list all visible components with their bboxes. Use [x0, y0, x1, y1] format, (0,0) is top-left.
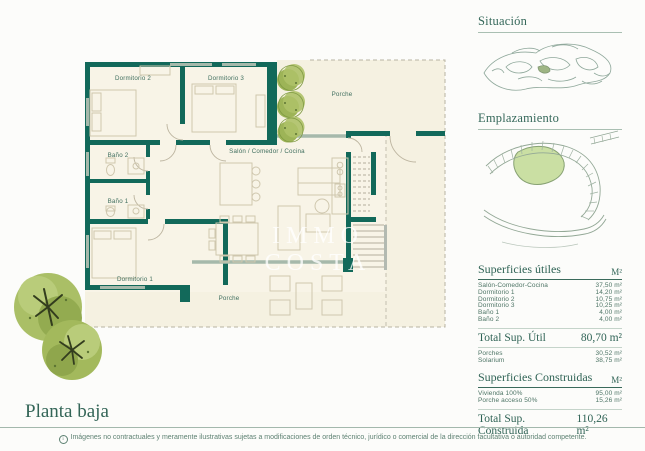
total-util-row: Total Sup. Útil 80,70 m²	[478, 329, 622, 348]
plot-parcel	[514, 146, 565, 184]
emplazamiento-title: Emplazamiento	[478, 111, 622, 126]
watermark: IMMO COSTA	[265, 223, 372, 276]
superficies-utiles-header: Superficies útiles M²	[478, 262, 622, 280]
room-label-bano1: Baño 1	[108, 198, 129, 205]
situacion-map	[478, 33, 622, 105]
situacion-title: Situación	[478, 14, 622, 29]
disclaimer: iImágenes no contractuales y meramente i…	[0, 434, 645, 444]
floor-plan: IMMO COSTA Dormitorio 2 Dormitorio 3 Por…	[0, 0, 470, 451]
room-label-dormitorio3: Dormitorio 3	[208, 75, 244, 82]
table-row: Solarium 38,75 m²	[478, 358, 622, 365]
unit-label: M²	[611, 267, 622, 277]
room-label-dormitorio2: Dormitorio 2	[115, 75, 151, 82]
info-icon: i	[59, 435, 68, 444]
disclaimer-text: Imágenes no contractuales y meramente il…	[71, 434, 587, 441]
svg-text:COSTA: COSTA	[265, 250, 372, 276]
room-label-dormitorio1: Dormitorio 1	[117, 276, 153, 283]
situacion-section: Situación	[478, 14, 622, 105]
footer-divider	[0, 427, 645, 428]
room-label-bano2: Baño 2	[108, 152, 129, 159]
hedge-trees	[277, 64, 305, 143]
table-row: Porche acceso 50% 15,26 m²	[478, 398, 622, 405]
room-label-porche-bottom: Porche	[219, 295, 240, 302]
utiles-extra-rows: Porches 30,52 m² Solarium 38,75 m²	[478, 348, 622, 369]
construidas-rows: Vivienda 100% 95,00 m² Porche acceso 50%…	[478, 388, 622, 410]
superficies-utiles-title: Superficies útiles	[478, 262, 561, 277]
surface-tables: Superficies útiles M² Salón-Comedor-Coci…	[478, 262, 622, 440]
svg-text:IMMO: IMMO	[272, 223, 364, 249]
room-label-salon: Salón / Comedor / Cocina	[229, 148, 305, 155]
superficies-construidas-title: Superficies Construidas	[478, 370, 592, 385]
unit-label: M²	[611, 375, 622, 385]
room-label-porche-top: Porche	[332, 91, 353, 98]
utiles-rows: Salón-Comedor-Cocina 37,50 m² Dormitorio…	[478, 280, 622, 329]
emplazamiento-section: Emplazamiento	[478, 111, 622, 252]
page-title: Planta baja	[25, 401, 109, 423]
superficies-construidas-header: Superficies Construidas M²	[478, 370, 622, 388]
info-sidebar: Situación Emplazamiento	[478, 0, 622, 440]
table-row: Baño 2 4,00 m²	[478, 317, 622, 324]
emplazamiento-map	[478, 130, 622, 252]
